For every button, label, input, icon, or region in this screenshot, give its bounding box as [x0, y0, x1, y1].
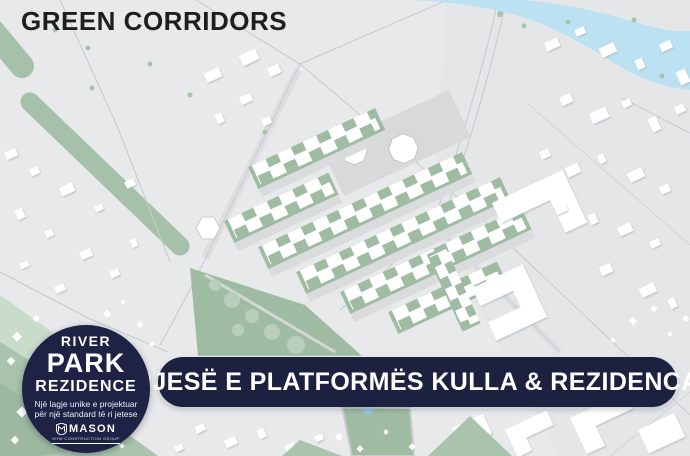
brand-subtitle: MYM CONSTRUCTION GROUP	[52, 436, 119, 444]
green-corridors-poster: GREEN CORRIDORS RIVER PARK REZIDENCE Një…	[0, 0, 690, 456]
badge-river-label: RIVER	[61, 334, 111, 349]
badge-tagline: Një lagje unike e projektuar për një sta…	[34, 399, 137, 419]
page-title: GREEN CORRIDORS	[21, 6, 287, 37]
platform-banner: PJESË E PLATFORMËS KULLA & REZIDENCA	[158, 357, 677, 407]
mason-crest-icon	[56, 423, 67, 435]
badge-rezidence-label: REZIDENCE	[35, 378, 136, 395]
badge-tagline-line2: për një standard të ri jetese	[34, 409, 137, 419]
brand-row: MASON	[56, 423, 116, 435]
pool	[364, 409, 372, 414]
river-park-badge: RIVER PARK REZIDENCE Një lagje unike e p…	[22, 325, 150, 453]
badge-tagline-line1: Një lagje unike e projektuar	[34, 399, 137, 409]
badge-park-label: PARK	[47, 350, 126, 377]
brand-name: MASON	[69, 424, 116, 435]
platform-banner-label: PJESË E PLATFORMËS KULLA & REZIDENCA	[135, 368, 690, 397]
